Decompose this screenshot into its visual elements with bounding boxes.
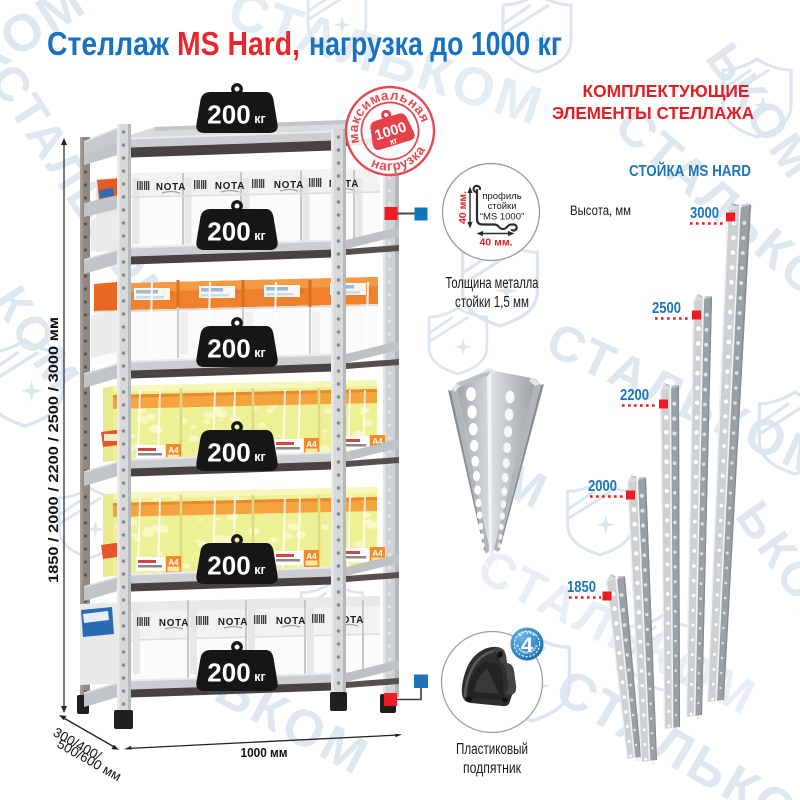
svg-text:2200: 2200: [620, 387, 649, 404]
svg-text:40 мм.: 40 мм.: [457, 191, 469, 224]
svg-text:“MS 1000”: “MS 1000”: [480, 212, 524, 223]
svg-text:2000: 2000: [588, 478, 617, 495]
svg-text:кг: кг: [254, 450, 265, 464]
svg-text:КОМПЛЕКТУЮЩИЕ: КОМПЛЕКТУЮЩИЕ: [583, 81, 750, 101]
svg-text:200: 200: [207, 100, 250, 130]
svg-text:нагрузка до 1000 кг: нагрузка до 1000 кг: [309, 25, 562, 62]
svg-text:СТОЙКА MS HARD: СТОЙКА MS HARD: [629, 162, 751, 180]
svg-text:A4: A4: [168, 558, 179, 567]
svg-text:Стеллаж: Стеллаж: [47, 25, 170, 62]
svg-text:1850 / 2000 / 2200 / 2500 / 30: 1850 / 2000 / 2200 / 2500 / 3000 мм: [46, 317, 61, 583]
svg-text:200: 200: [207, 334, 250, 364]
svg-text:200: 200: [207, 658, 250, 688]
svg-text:кг: кг: [254, 229, 265, 243]
svg-text:кг: кг: [254, 563, 265, 577]
svg-text:A4: A4: [306, 552, 317, 561]
svg-text:MS Hard,: MS Hard,: [177, 25, 300, 62]
svg-text:стойки 1,5 мм: стойки 1,5 мм: [455, 294, 529, 311]
svg-text:200: 200: [207, 438, 250, 468]
svg-text:подпятник: подпятник: [463, 760, 521, 777]
svg-text:Пластиковый: Пластиковый: [456, 741, 528, 758]
svg-text:3000: 3000: [690, 205, 719, 222]
svg-text:4: 4: [521, 633, 533, 657]
svg-text:кг: кг: [254, 112, 265, 126]
svg-text:200: 200: [207, 551, 250, 581]
svg-text:A4: A4: [168, 446, 179, 455]
svg-text:кг: кг: [254, 670, 265, 684]
svg-text:2500: 2500: [652, 300, 681, 317]
svg-text:стойки: стойки: [487, 201, 516, 212]
svg-text:ЭЛЕМЕНТЫ СТЕЛЛАЖА: ЭЛЕМЕНТЫ СТЕЛЛАЖА: [552, 103, 754, 123]
svg-text:1000 мм: 1000 мм: [241, 745, 288, 760]
svg-text:Высота, мм: Высота, мм: [570, 203, 631, 218]
svg-text:A4: A4: [372, 549, 383, 558]
svg-text:1850: 1850: [567, 579, 596, 596]
svg-text:Толщина металла: Толщина металла: [446, 275, 539, 292]
svg-text:200: 200: [207, 217, 250, 247]
svg-text:A4: A4: [306, 440, 317, 449]
svg-text:40 мм.: 40 мм.: [479, 237, 512, 249]
svg-text:кг: кг: [254, 346, 265, 360]
